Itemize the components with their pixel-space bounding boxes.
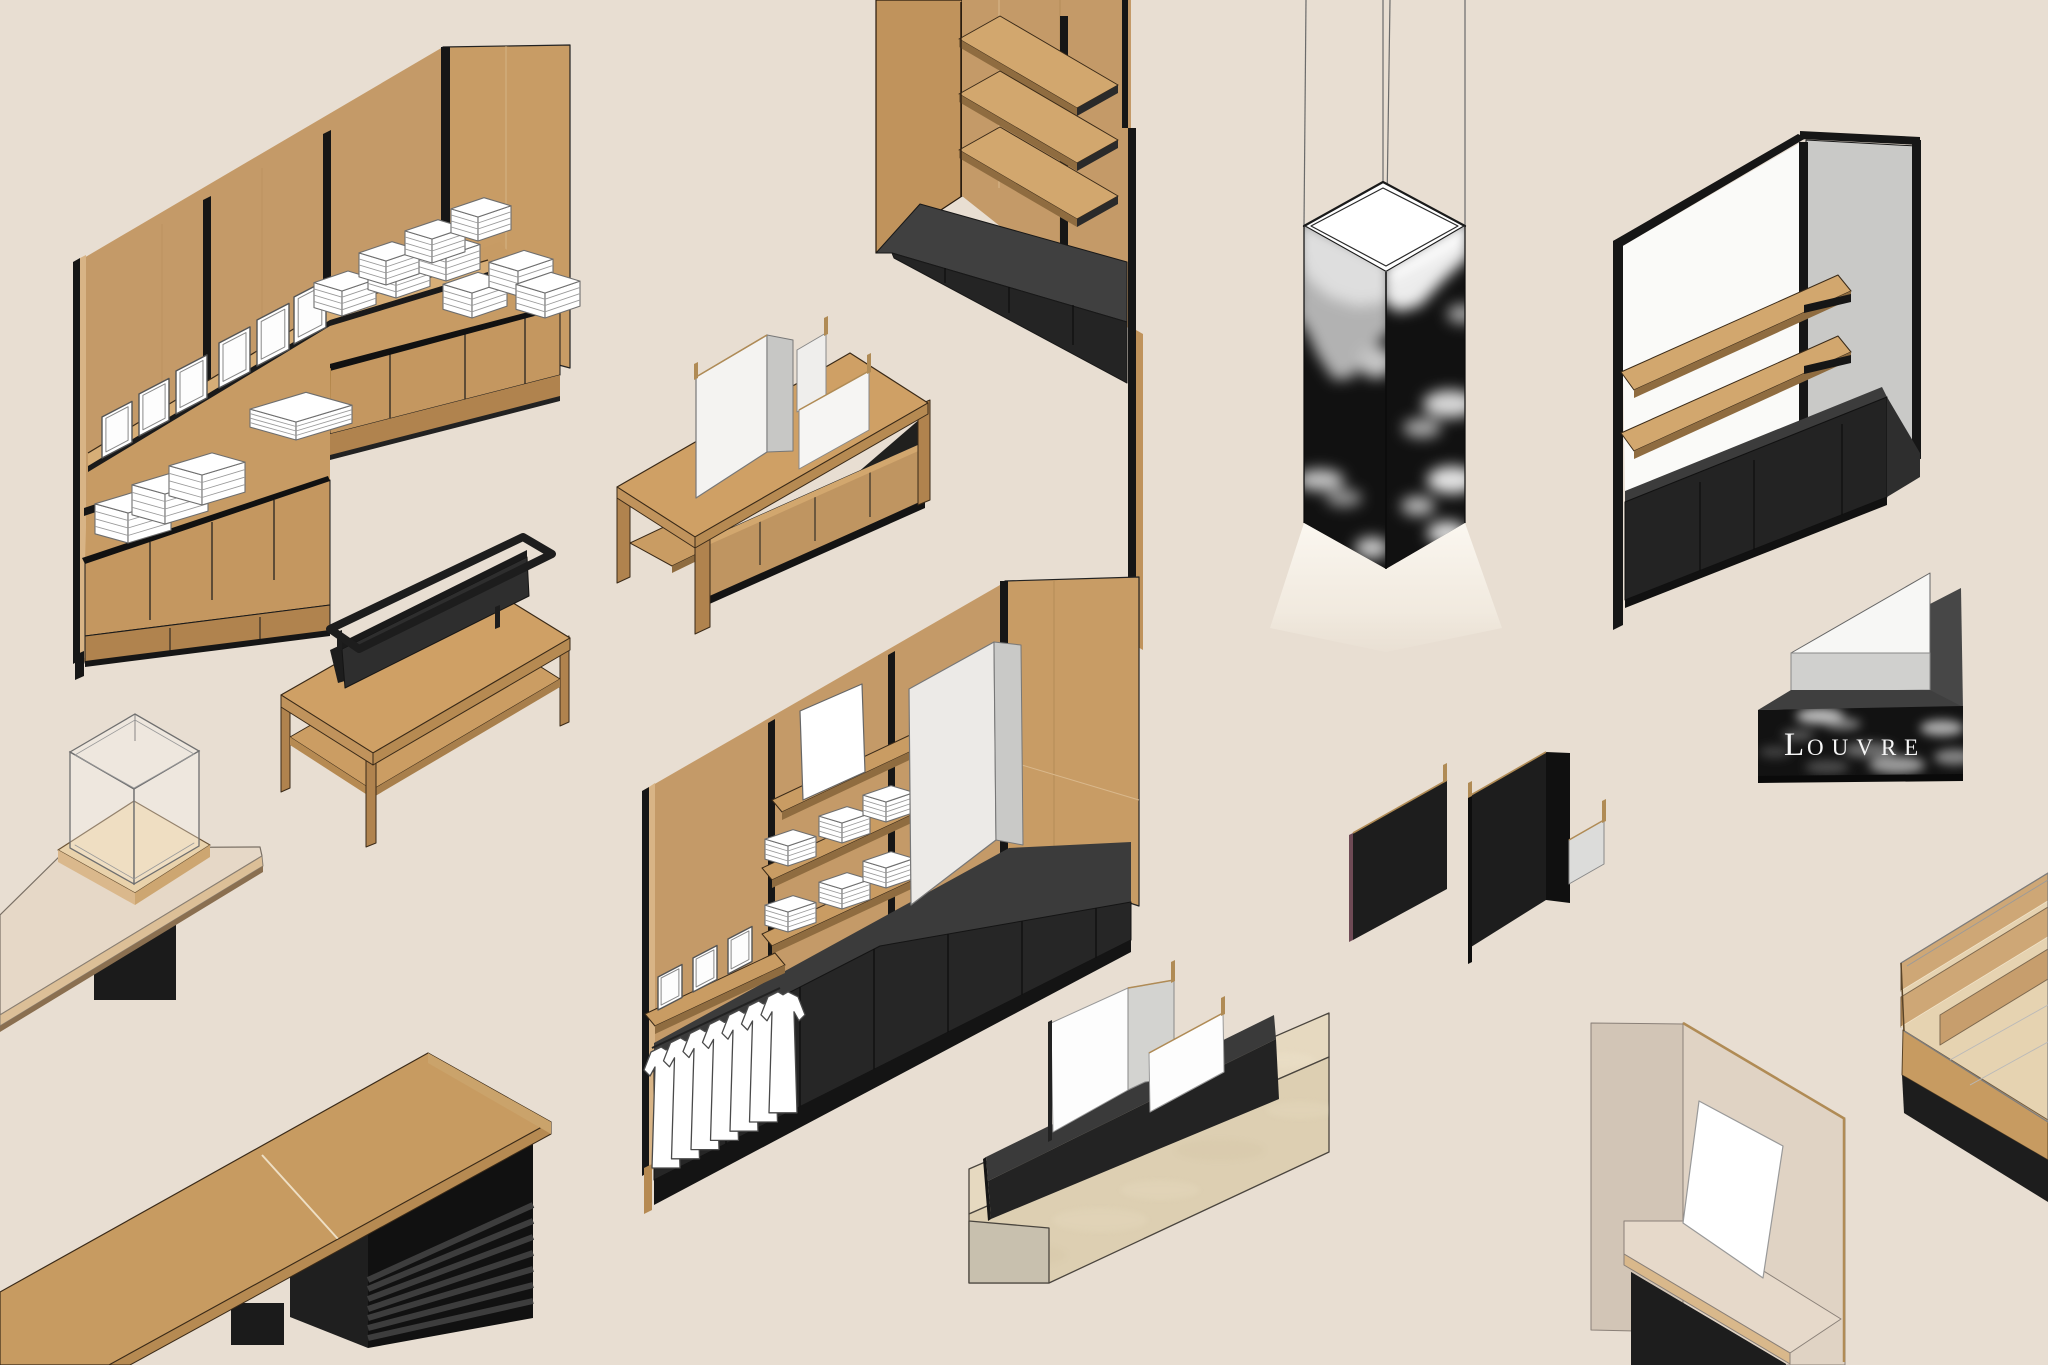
svg-text:OUVRE: OUVRE [1807, 735, 1926, 760]
svg-text:L: L [1784, 727, 1804, 763]
